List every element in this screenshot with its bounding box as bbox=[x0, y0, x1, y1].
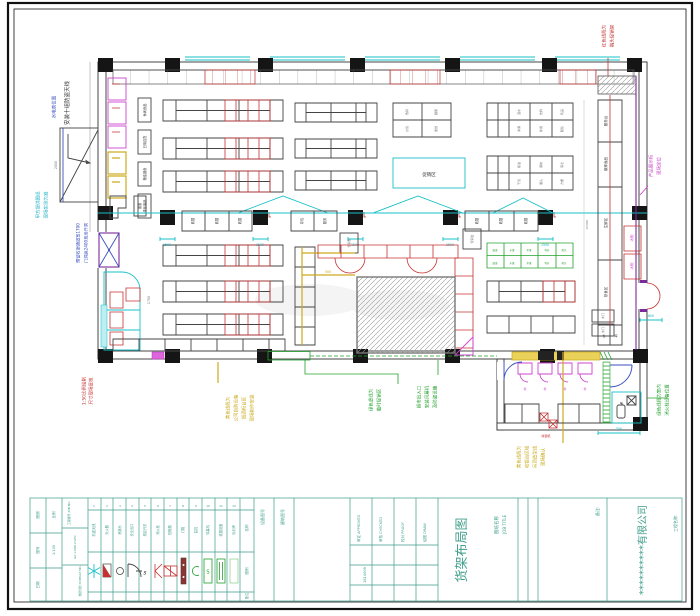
legend-name: 消火栓 bbox=[155, 524, 160, 534]
dim-1500: 1500 bbox=[256, 243, 264, 247]
legend-no: 9 bbox=[195, 504, 197, 508]
dim-1500: 1500 bbox=[541, 243, 549, 247]
counter-seg-label: 服务台 bbox=[603, 115, 608, 126]
title-block: 图别 图号 日期 比例 1:100 工程编号 JOB NO. G2.110812… bbox=[30, 498, 682, 601]
grid-cell: 炒货 bbox=[404, 126, 409, 132]
lamp-icon bbox=[181, 558, 186, 584]
grid-cell: 休闲 bbox=[538, 126, 543, 132]
legend-name: 安全出口 bbox=[129, 524, 134, 537]
tb-cell: 图别 bbox=[35, 511, 40, 519]
checkout-cell: 收银 bbox=[237, 217, 242, 224]
right-door-gap bbox=[638, 283, 648, 309]
grid-cell: 南北 bbox=[559, 162, 564, 168]
green-cell: 特价 bbox=[544, 261, 550, 265]
tb-cell: 比例 bbox=[51, 511, 56, 519]
counter-small-label: 库 bbox=[614, 333, 617, 338]
legend-no: 2 bbox=[106, 504, 108, 508]
legend-header-name: 名称 bbox=[244, 524, 249, 532]
note-yellow: 黄色线段为 bbox=[225, 396, 232, 419]
camera-icon bbox=[192, 567, 199, 576]
company-name: **********有限公司 bbox=[636, 505, 649, 595]
air-curtain-icon: S bbox=[204, 559, 212, 583]
floor-plan-drawing: 休闲食品 日用百货 粮油副食 洗化用品 2000 1700 客服 bbox=[0, 0, 700, 616]
grid-cell: 膨化 bbox=[559, 126, 564, 132]
aisle-label: 粮油副食 bbox=[142, 167, 147, 181]
green-cell: 特价 bbox=[544, 248, 550, 252]
dim-500: 500 bbox=[616, 427, 622, 431]
grid-cell: 干货 bbox=[516, 179, 521, 185]
green-cell: 干果 bbox=[526, 248, 532, 252]
note-yellow-annex: 现场确认 bbox=[540, 448, 547, 466]
green-cell: 蔬菜 bbox=[492, 261, 498, 265]
legend-no: 8 bbox=[182, 504, 184, 508]
checkout-cell: 收银 bbox=[498, 217, 503, 224]
grid-cell: 方便 bbox=[559, 179, 564, 185]
legend-name: 喷淋头 bbox=[117, 524, 122, 534]
ramp-dim: 2000 bbox=[54, 161, 58, 169]
misc-col: 建筑图号 bbox=[279, 509, 285, 525]
top-wall-shelves bbox=[113, 70, 634, 84]
dim-600: 600 bbox=[648, 314, 654, 318]
legend-no: 10 bbox=[206, 504, 210, 508]
freezer-label: 冰柜 bbox=[629, 234, 634, 242]
grid-cell: 糖果 bbox=[433, 109, 438, 115]
gondola-rows-center bbox=[295, 103, 377, 190]
checkout-cell: 收银 bbox=[214, 217, 219, 224]
misc-col: 设备图号 bbox=[259, 509, 265, 525]
tb-cell: 1:100 bbox=[52, 545, 56, 555]
role-label: 绘图 DRAW bbox=[422, 523, 427, 542]
scale-label: 秤 bbox=[584, 387, 587, 391]
legend-name: 标识牌 bbox=[231, 524, 236, 534]
legend-no: 7 bbox=[169, 504, 171, 508]
counter-seg-label: 熟食区 bbox=[603, 286, 608, 297]
annex-door-right bbox=[610, 365, 632, 387]
annex-checkout-label: 收银机 bbox=[541, 433, 550, 438]
project-label: 工程名称: bbox=[672, 515, 678, 532]
counter-seg-label: 散称食品 bbox=[603, 157, 608, 171]
note-blue-small: 水电表位置 bbox=[51, 95, 58, 118]
green-cell: 水果 bbox=[509, 248, 515, 252]
drawing-title: 货架布局图 bbox=[454, 517, 470, 582]
door-icon bbox=[128, 564, 142, 577]
green-cell: 干果 bbox=[526, 261, 532, 265]
note-yellow-annex: 收银台区域 bbox=[524, 445, 531, 468]
green-cell: 堆头 bbox=[561, 248, 567, 252]
legend-header-note: 备注 bbox=[244, 592, 249, 599]
legend-name: 配电箱 bbox=[167, 524, 172, 534]
note-blue-long: 预留收银通道宽1700 bbox=[75, 223, 82, 263]
hydrant-icon bbox=[155, 564, 162, 578]
note-topleft: 安装十组防盗天线 bbox=[63, 81, 71, 126]
grid-cell: 散称 bbox=[404, 109, 409, 115]
grid-cell: 乳品 bbox=[559, 109, 564, 115]
grid-cell: 调味 bbox=[538, 162, 543, 168]
note-blue-long: 门洞高2400现场开洞 bbox=[83, 223, 90, 263]
note-green-a: 绿色虚线为 bbox=[368, 388, 375, 411]
checkout-band: 收银 收银 收银 存包 服务 收银 收银 收银 1500 1500 1500 1… bbox=[98, 196, 647, 253]
door-box-label: 木门 bbox=[600, 313, 605, 319]
note-magenta-right: 产品展示柜 bbox=[648, 154, 655, 177]
role-label: 校对 PROOF bbox=[400, 522, 405, 542]
legend-name: 监控 bbox=[193, 526, 198, 533]
legend-header-symbol: 图例 bbox=[244, 567, 249, 575]
cad-sheet: 休闲食品 日用百货 粮油副食 洗化用品 2000 1700 客服 bbox=[0, 0, 700, 616]
role-no: 1814009 bbox=[363, 567, 367, 583]
note-yellow: 公司自购设备 bbox=[233, 394, 240, 421]
columns-layer bbox=[98, 58, 648, 431]
legend-symbols: s S bbox=[88, 558, 238, 584]
annex-door-left bbox=[504, 362, 522, 380]
switch-icon: s bbox=[143, 570, 146, 577]
legend-name: 风幕机 bbox=[205, 524, 210, 534]
note-yellow-annex: 吊顶造型线 bbox=[532, 445, 539, 468]
legend-no: 11 bbox=[219, 504, 223, 508]
note-magenta-right: 现场定位 bbox=[656, 157, 663, 175]
note-green-a: 临时促销区 bbox=[376, 388, 383, 411]
note-green-right: 消火栓设备位置 bbox=[664, 384, 671, 416]
checkout-cell: 收银 bbox=[474, 217, 479, 224]
checkout-cell: 收银 bbox=[190, 217, 195, 224]
sign-icon bbox=[230, 559, 238, 583]
note-green-b: 及防盗设施 bbox=[432, 385, 439, 408]
freezer-label: 冰柜 bbox=[629, 262, 634, 270]
dim-1500: 1500 bbox=[163, 243, 171, 247]
legend-no: 1 bbox=[93, 504, 95, 508]
legend-no: 12 bbox=[232, 504, 236, 508]
aisle-label: 休闲食品 bbox=[142, 104, 147, 117]
annex-door-gap bbox=[497, 362, 504, 380]
note-yellow: 现场制作安装 bbox=[249, 394, 256, 421]
shelves-right-bottom: 蔬菜 水果 干果 特价 堆头 蔬菜 水果 干果 特价 堆头 木门 木门 bbox=[487, 243, 614, 336]
legend-no: 3 bbox=[119, 504, 121, 508]
promo-box-label: 促销台 bbox=[346, 238, 351, 247]
promo-box-label: 促销台 bbox=[469, 234, 474, 243]
counter-small-label: 仓 bbox=[602, 333, 605, 338]
dim-500-yellow: 500 bbox=[325, 270, 331, 274]
walls bbox=[90, 62, 648, 430]
legend-name: 收银设备 bbox=[218, 523, 223, 537]
promo-area-label: 促销区 bbox=[422, 171, 436, 178]
legend-table: 1 2 3 4 5 6 7 8 9 10 11 12 防盗天线 灭火器 喷淋头 … bbox=[88, 504, 249, 599]
table-grids: 散称 糖果 炒货 蜜饯 酒水 饮料 乳品 冲调 休闲 膨化 粮油 调味 南北 干… bbox=[393, 103, 573, 190]
title-label-en: JOB TITLE bbox=[502, 514, 507, 535]
service-counter: 1700 bbox=[101, 272, 151, 350]
note-green-b: 超市出入口 bbox=[416, 386, 423, 409]
note-cyan: 甲方提供图纸 bbox=[35, 191, 42, 218]
legend-no: 4 bbox=[131, 504, 133, 508]
title-label-cn: 图纸名称 bbox=[493, 516, 500, 534]
door-box-label: 木门 bbox=[600, 327, 605, 333]
legend-name: 灭火器 bbox=[105, 524, 109, 534]
grid-cell: 酒水 bbox=[516, 109, 521, 115]
note-yellow-annex: 黄色线段为 bbox=[516, 445, 523, 468]
grid-cell: 粮油 bbox=[516, 162, 521, 168]
green-partition bbox=[603, 362, 610, 423]
aisle-label: 日用百货 bbox=[142, 136, 147, 149]
role-label: 审核 CHECKED bbox=[378, 517, 383, 542]
note-red-left: 尺寸现场复核 bbox=[88, 377, 95, 404]
role-label: 审定 APPROVED bbox=[356, 515, 361, 542]
left-wall-fixtures bbox=[108, 78, 126, 198]
tb-cell: 日期 bbox=[35, 581, 40, 589]
gondola-rows-left bbox=[113, 100, 285, 351]
legend-name: 防盗天线 bbox=[91, 523, 96, 537]
scale-label: 秤 bbox=[524, 387, 527, 391]
magenta-fixture bbox=[152, 352, 164, 359]
service-cell: 存包 bbox=[299, 217, 304, 224]
legend-name: 感应开关 bbox=[142, 523, 147, 537]
note-label: 备注: bbox=[594, 507, 600, 516]
grid-cell: 饮料 bbox=[538, 109, 543, 115]
extinguisher-icon bbox=[103, 564, 111, 577]
scale-label: 秤 bbox=[564, 387, 567, 391]
grid-cell: 蜜饯 bbox=[433, 126, 438, 132]
legend-no: 5 bbox=[144, 504, 146, 508]
scale-label: 秤 bbox=[544, 387, 547, 391]
note-green-b: 安装风幕机 bbox=[424, 385, 431, 408]
tb-consult: 楼层规划 CONSULT NO. bbox=[78, 565, 82, 596]
grid-cell: 冲调 bbox=[516, 126, 521, 132]
grid-cell: 罐头 bbox=[538, 179, 543, 185]
panel-icon bbox=[164, 566, 177, 576]
service-cell: 服务 bbox=[322, 217, 327, 224]
tb-cell: 图号 bbox=[35, 546, 40, 554]
note-cyan: 现场实测为准 bbox=[43, 191, 50, 218]
counter-label: 客服 bbox=[137, 203, 142, 209]
hatch-storage-block bbox=[357, 277, 455, 353]
note-red-left: 1:50比例绘制 bbox=[81, 376, 88, 405]
aisle-label-boxes: 休闲食品 日用百货 粮油副食 洗化用品 bbox=[138, 98, 151, 218]
note-red-topright: 红色线段为 bbox=[601, 24, 608, 47]
legend-no: 6 bbox=[157, 504, 159, 508]
svg-text:S: S bbox=[206, 570, 209, 576]
note-green-right: 绿色线段为室内 bbox=[656, 384, 663, 416]
legend-name: 灯箱 bbox=[180, 526, 185, 533]
sprinkler-icon bbox=[117, 568, 124, 575]
dim-depth: 15300 bbox=[585, 220, 589, 230]
entrance-ramp: 2000 bbox=[54, 128, 98, 202]
note-red-topright: 端头促销架 bbox=[609, 24, 616, 47]
antenna-icon bbox=[88, 564, 100, 578]
aisle-dim: 1700 bbox=[147, 296, 151, 304]
pos-icon bbox=[217, 559, 225, 583]
checkout-cell: 收银 bbox=[523, 217, 528, 224]
tb-jobno-label: 工程编号 JOB NO. bbox=[66, 501, 71, 526]
green-cell: 堆头 bbox=[561, 261, 567, 265]
green-cell: 水果 bbox=[509, 261, 515, 265]
black-leader bbox=[68, 134, 90, 164]
green-cell: 蔬菜 bbox=[492, 248, 498, 252]
hatch-block-topright bbox=[598, 76, 636, 94]
tb-jobno: G2.110812 LPIC bbox=[73, 535, 77, 559]
counter-seg-label: 生鲜区 bbox=[603, 217, 608, 228]
note-yellow: 烟酒柜台区 bbox=[241, 396, 248, 419]
